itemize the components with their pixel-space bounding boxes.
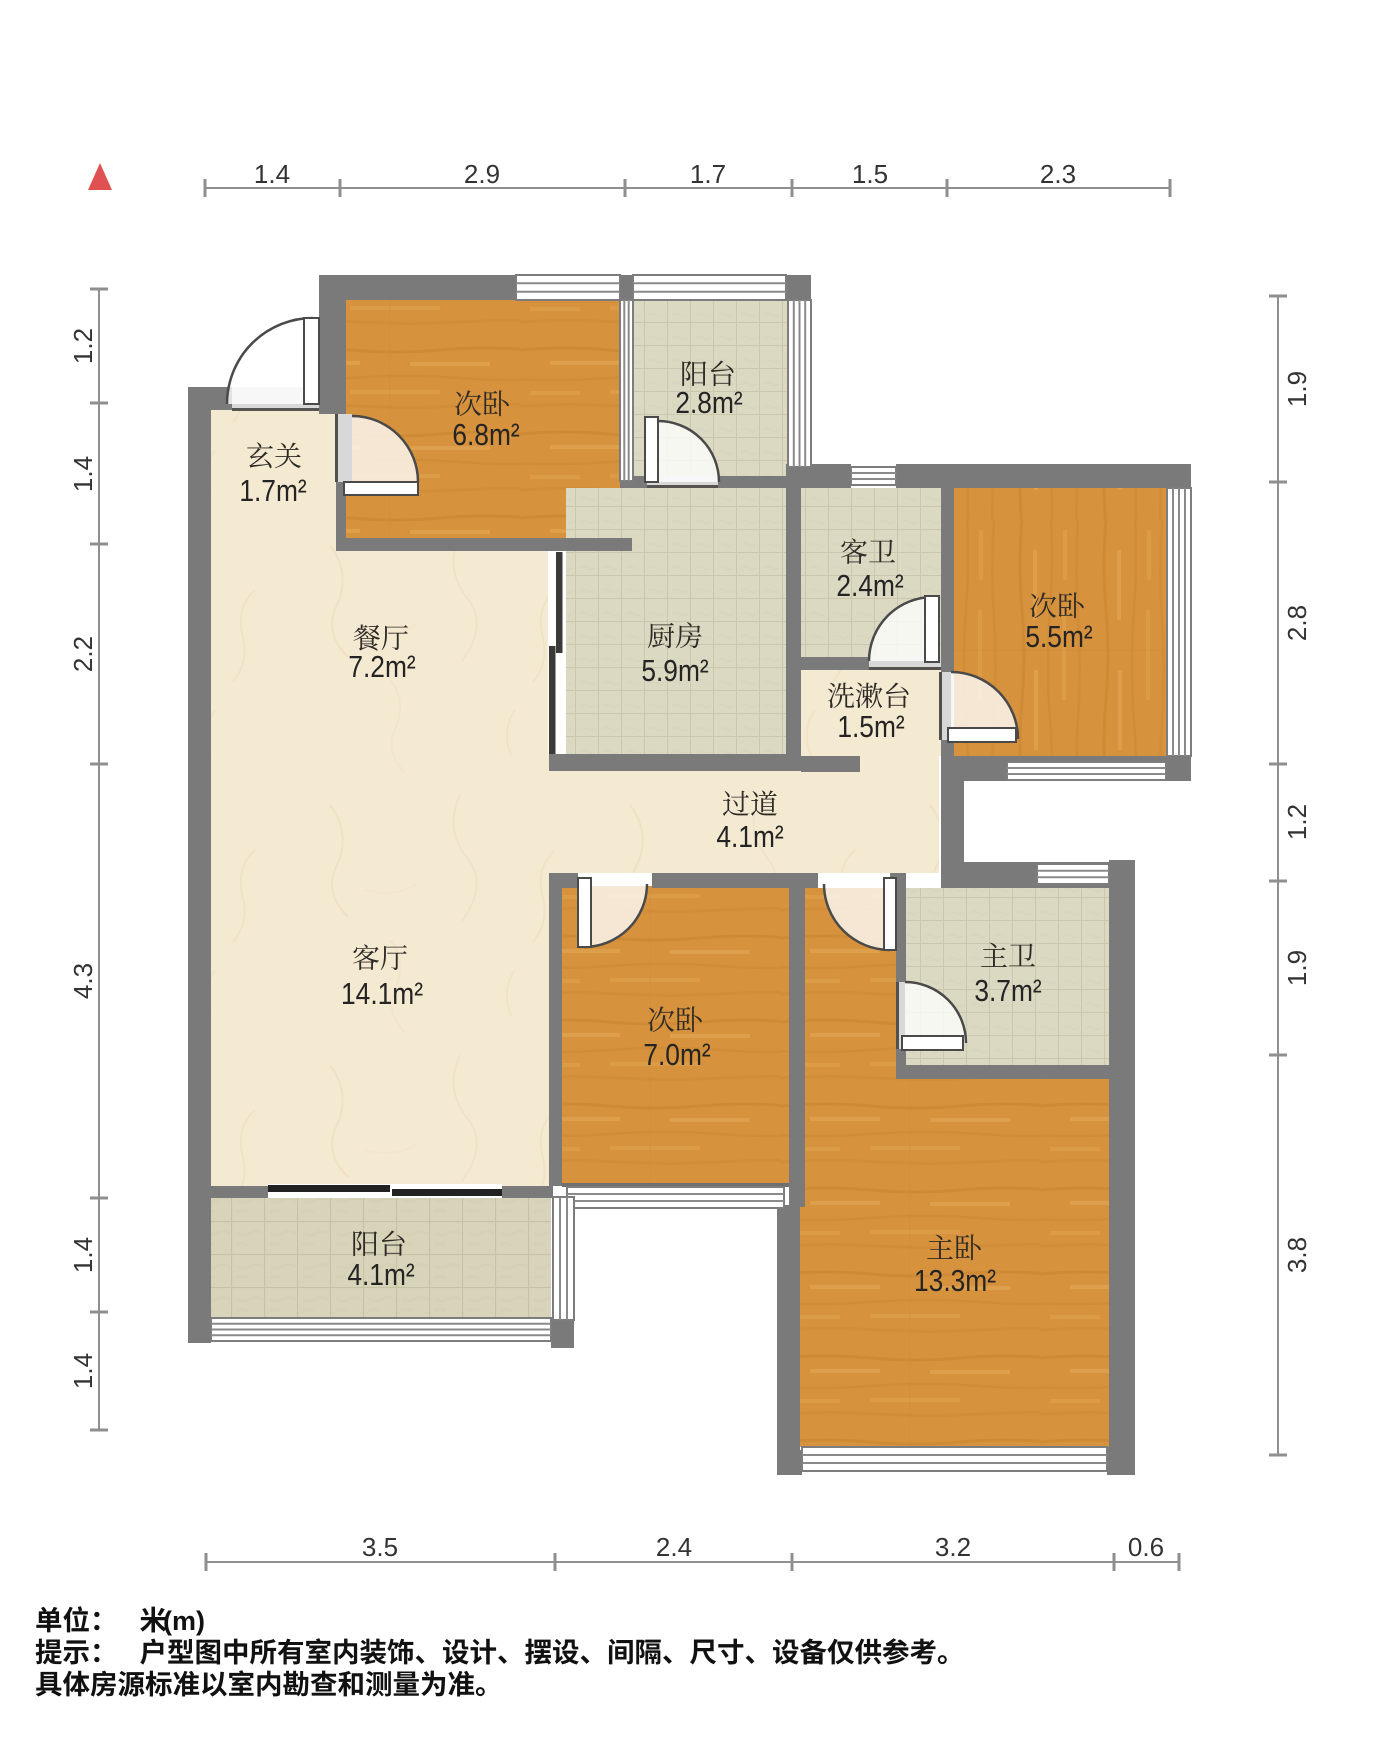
svg-text:1.7: 1.7 [690,159,726,189]
svg-text:2.4m²: 2.4m² [836,569,904,603]
svg-text:3.2: 3.2 [935,1532,971,1562]
svg-text:2.9: 2.9 [464,159,500,189]
svg-text:2.3: 2.3 [1040,159,1076,189]
svg-text:5.9m²: 5.9m² [641,654,709,688]
svg-text:3.7m²: 3.7m² [974,974,1042,1008]
svg-text:1.4: 1.4 [68,1237,98,1273]
svg-text:2.4: 2.4 [656,1532,692,1562]
svg-text:(m): (m) [163,1606,205,1636]
svg-text:14.1m²: 14.1m² [341,977,423,1011]
svg-text:1.9: 1.9 [1282,371,1312,407]
svg-text:2.8m²: 2.8m² [675,386,743,420]
svg-text:1.9: 1.9 [1282,950,1312,986]
svg-text:1.5: 1.5 [852,159,888,189]
svg-text:1.7m²: 1.7m² [239,474,307,508]
svg-text:3.5: 3.5 [362,1532,398,1562]
svg-text:1.4: 1.4 [254,159,290,189]
svg-text:5.5m²: 5.5m² [1025,620,1093,654]
svg-text:4.1m²: 4.1m² [347,1258,415,1292]
svg-text:1.4: 1.4 [68,456,98,492]
svg-text:7.2m²: 7.2m² [348,650,416,684]
svg-text:6.8m²: 6.8m² [452,418,520,452]
svg-text:2.8: 2.8 [1282,605,1312,641]
svg-text:2.2: 2.2 [68,636,98,672]
svg-text:1.4: 1.4 [68,1353,98,1389]
svg-text:1.2: 1.2 [68,328,98,364]
svg-text:3.8: 3.8 [1282,1237,1312,1273]
svg-text:0.6: 0.6 [1128,1532,1164,1562]
svg-text:1.2: 1.2 [1282,804,1312,840]
svg-text:4.3: 4.3 [68,963,98,999]
svg-text:4.1m²: 4.1m² [716,820,784,854]
svg-text:1.5m²: 1.5m² [837,710,905,744]
svg-text:7.0m²: 7.0m² [643,1038,711,1072]
svg-text:13.3m²: 13.3m² [914,1264,996,1298]
